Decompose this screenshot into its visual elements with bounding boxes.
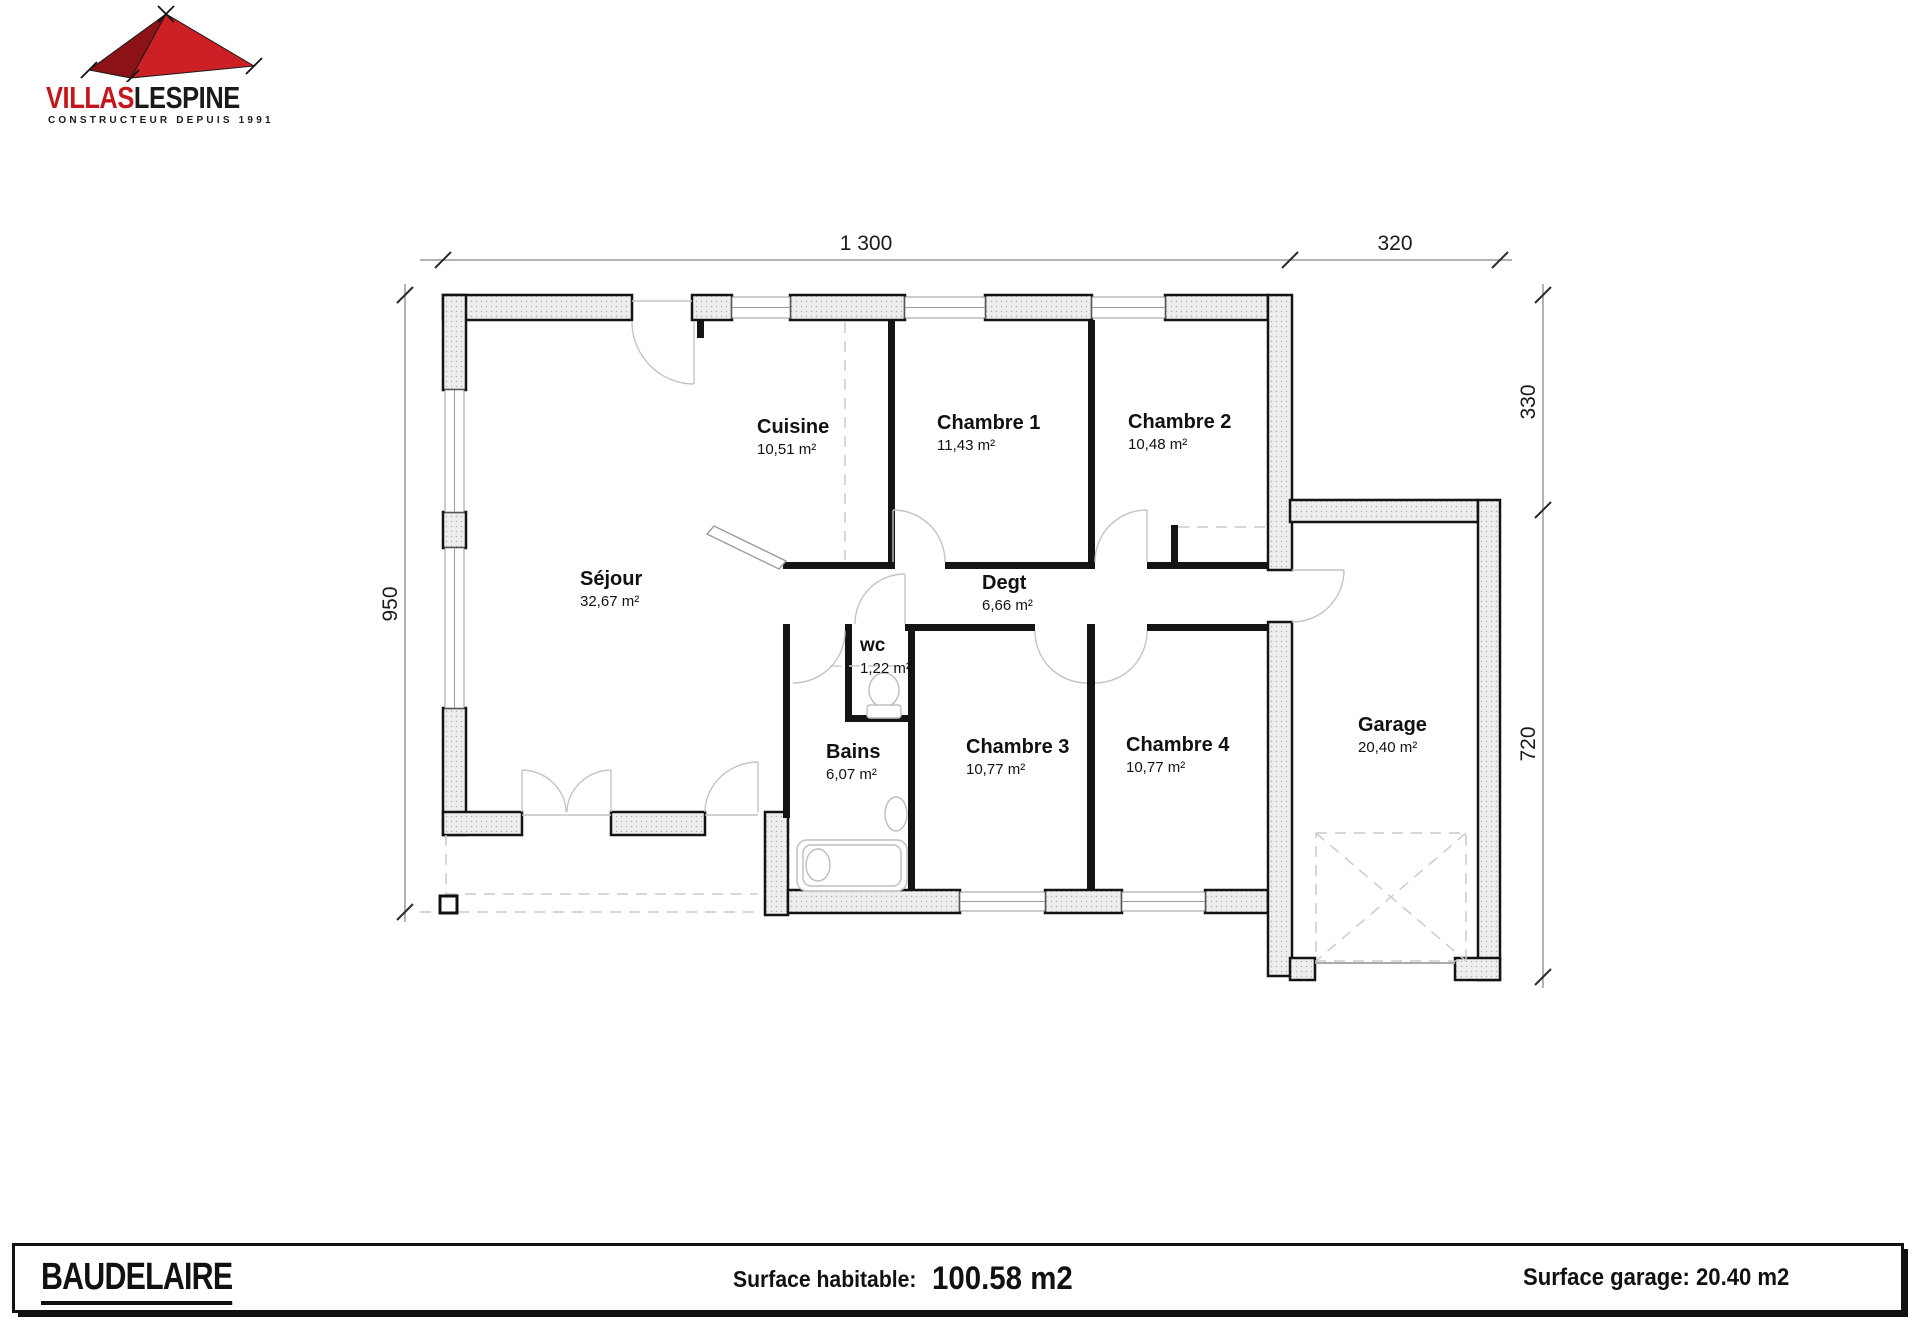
kitchen-counter — [707, 526, 786, 569]
fixtures — [707, 526, 907, 891]
dim-height-left: 950 — [379, 564, 403, 644]
dim-width-garage: 320 — [1345, 232, 1445, 256]
exterior-walls — [443, 295, 1500, 980]
toilet-icon — [867, 673, 901, 718]
window-left-sejour-2 — [445, 548, 464, 708]
window-top-cuisine — [732, 297, 790, 318]
model-name: BAUDELAIRE — [41, 1256, 232, 1305]
window-top-chambre2 — [1092, 297, 1165, 318]
bathtub-icon — [797, 840, 907, 891]
window-south-chambre3 — [960, 892, 1045, 911]
surface-habitable-label: Surface habitable: — [733, 1266, 916, 1293]
chambre2-door — [1095, 510, 1147, 562]
window-top-chambre1 — [905, 297, 985, 318]
room-label-chambre1: Chambre 1 11,43 m² — [937, 412, 1040, 456]
french-door-sejour — [522, 770, 611, 815]
bains-door — [793, 631, 845, 683]
floor-plan-drawing — [0, 0, 1920, 1338]
title-block: BAUDELAIRE Surface habitable: 100.58 m2 … — [12, 1243, 1904, 1313]
room-label-chambre4: Chambre 4 10,77 m² — [1126, 734, 1229, 778]
room-label-bains: Bains 6,07 m² — [826, 741, 880, 785]
dimension-ticks — [397, 252, 1551, 985]
dim-height-right-bottom: 720 — [1517, 704, 1541, 784]
room-label-chambre2: Chambre 2 10,48 m² — [1128, 411, 1231, 455]
room-label-sejour: Séjour 32,67 m² — [580, 568, 642, 612]
chambre4-door — [1095, 631, 1147, 683]
dim-width-main: 1 300 — [806, 232, 926, 256]
sink-icon — [885, 797, 907, 831]
window-south-chambre4 — [1122, 892, 1205, 911]
garage-parking-cross — [1316, 833, 1466, 961]
room-label-chambre3: Chambre 3 10,77 m² — [966, 736, 1069, 780]
wc-door — [855, 574, 905, 624]
chambre1-door — [893, 510, 945, 562]
room-label-wc: wc 1,22 m² — [860, 635, 911, 679]
surface-habitable-value: 100.58 m2 — [932, 1260, 1073, 1297]
dim-height-right-top: 330 — [1517, 362, 1541, 442]
entry-door — [632, 301, 694, 384]
chambre3-door — [1035, 631, 1087, 683]
room-label-degt: Degt 6,66 m² — [982, 572, 1033, 616]
terrace-post — [440, 896, 457, 913]
surface-garage: Surface garage: 20.40 m2 — [1523, 1264, 1789, 1292]
garage-door-interior — [1292, 570, 1344, 622]
floor-plan-page: VILLASLESPINE CONSTRUCTEUR DEPUIS 1991 — [0, 0, 1920, 1338]
room-label-cuisine: Cuisine 10,51 m² — [757, 416, 829, 460]
terrace-door — [705, 762, 758, 815]
surface-habitable: Surface habitable: 100.58 m2 — [733, 1260, 1085, 1297]
window-left-sejour-1 — [445, 390, 464, 512]
room-label-garage: Garage 20,40 m² — [1358, 714, 1427, 758]
